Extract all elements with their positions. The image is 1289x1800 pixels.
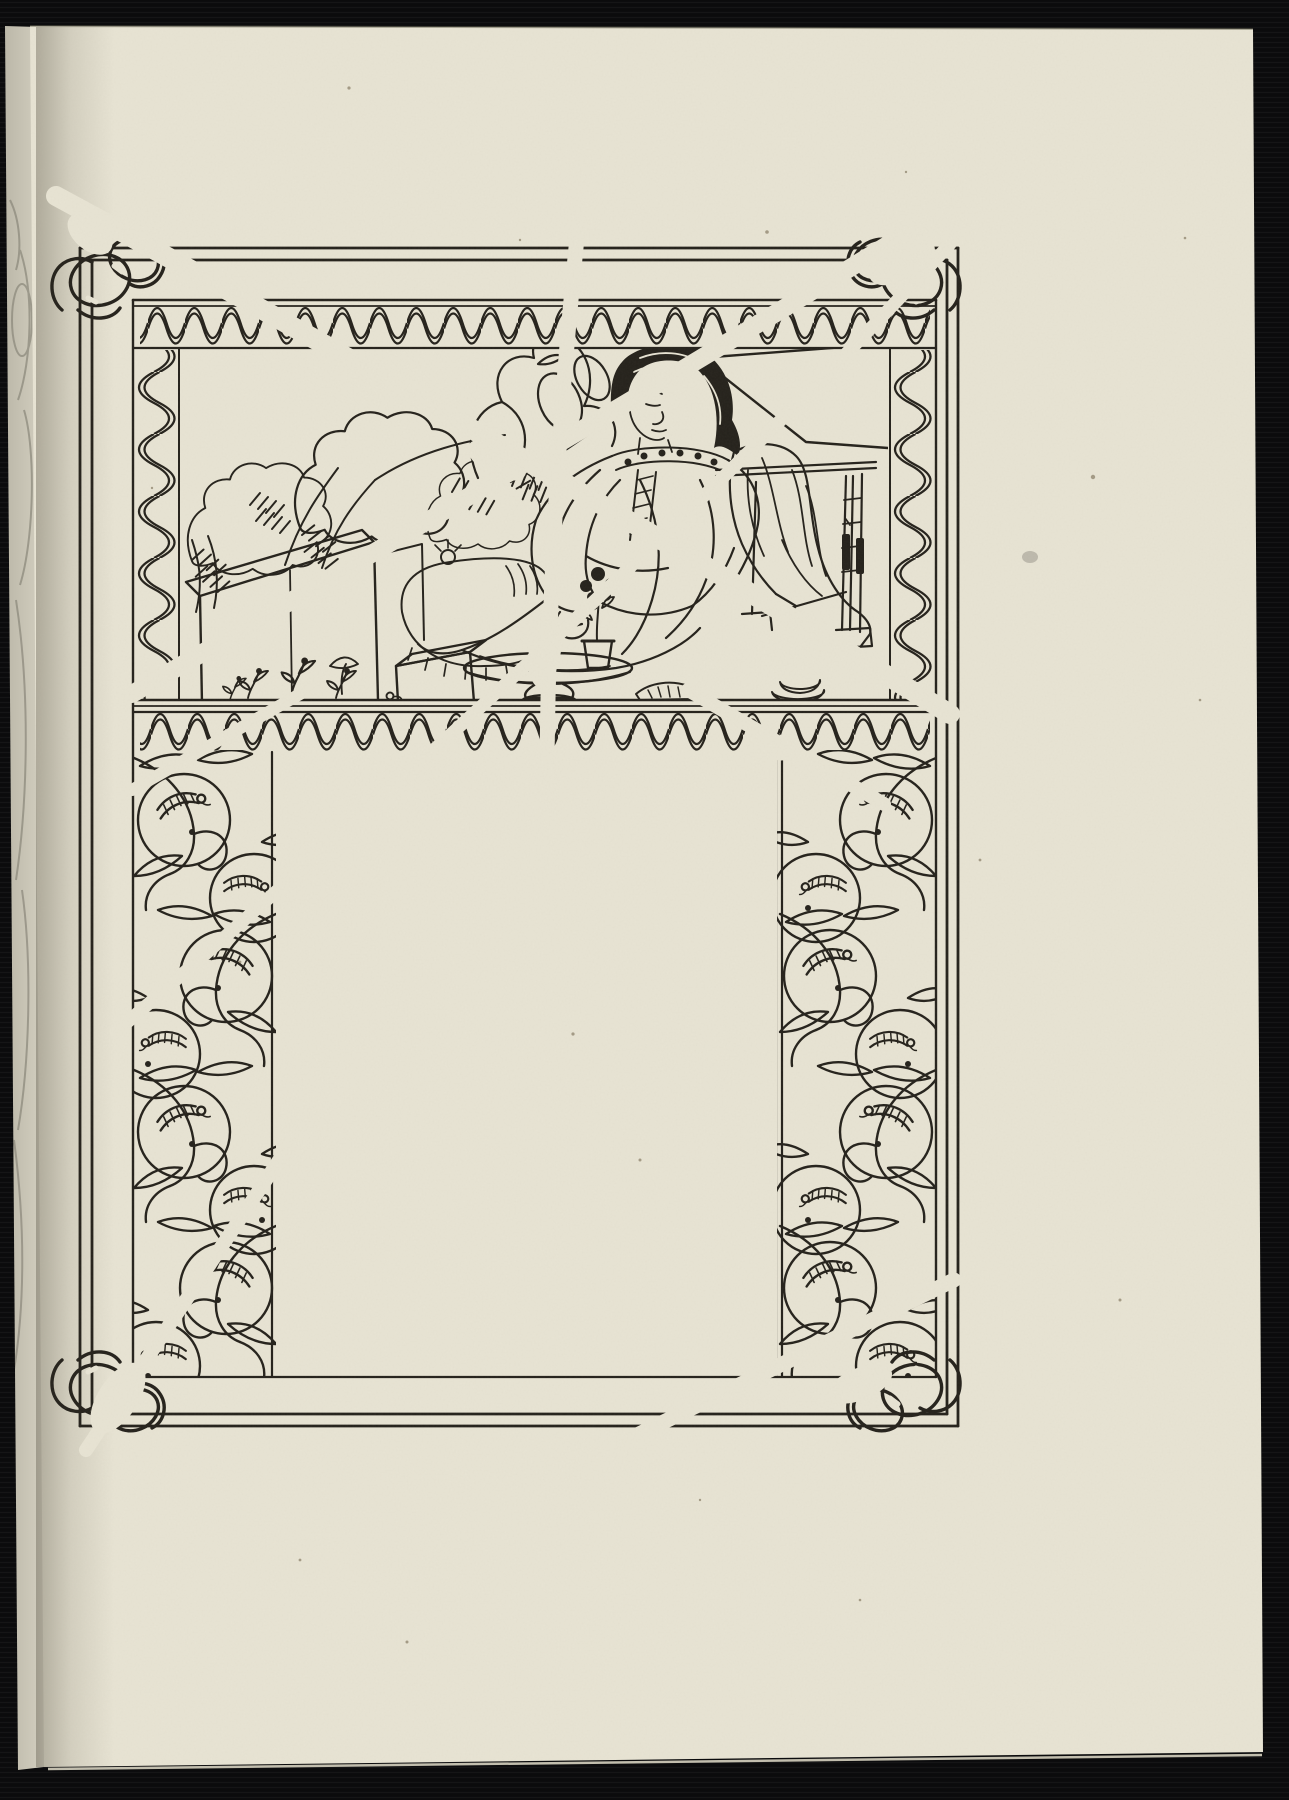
- smudge: [1022, 551, 1038, 563]
- paper-texture: [30, 26, 1263, 1767]
- book-page-scan: [0, 0, 1289, 1800]
- scanned-page-stage: [0, 0, 1289, 1800]
